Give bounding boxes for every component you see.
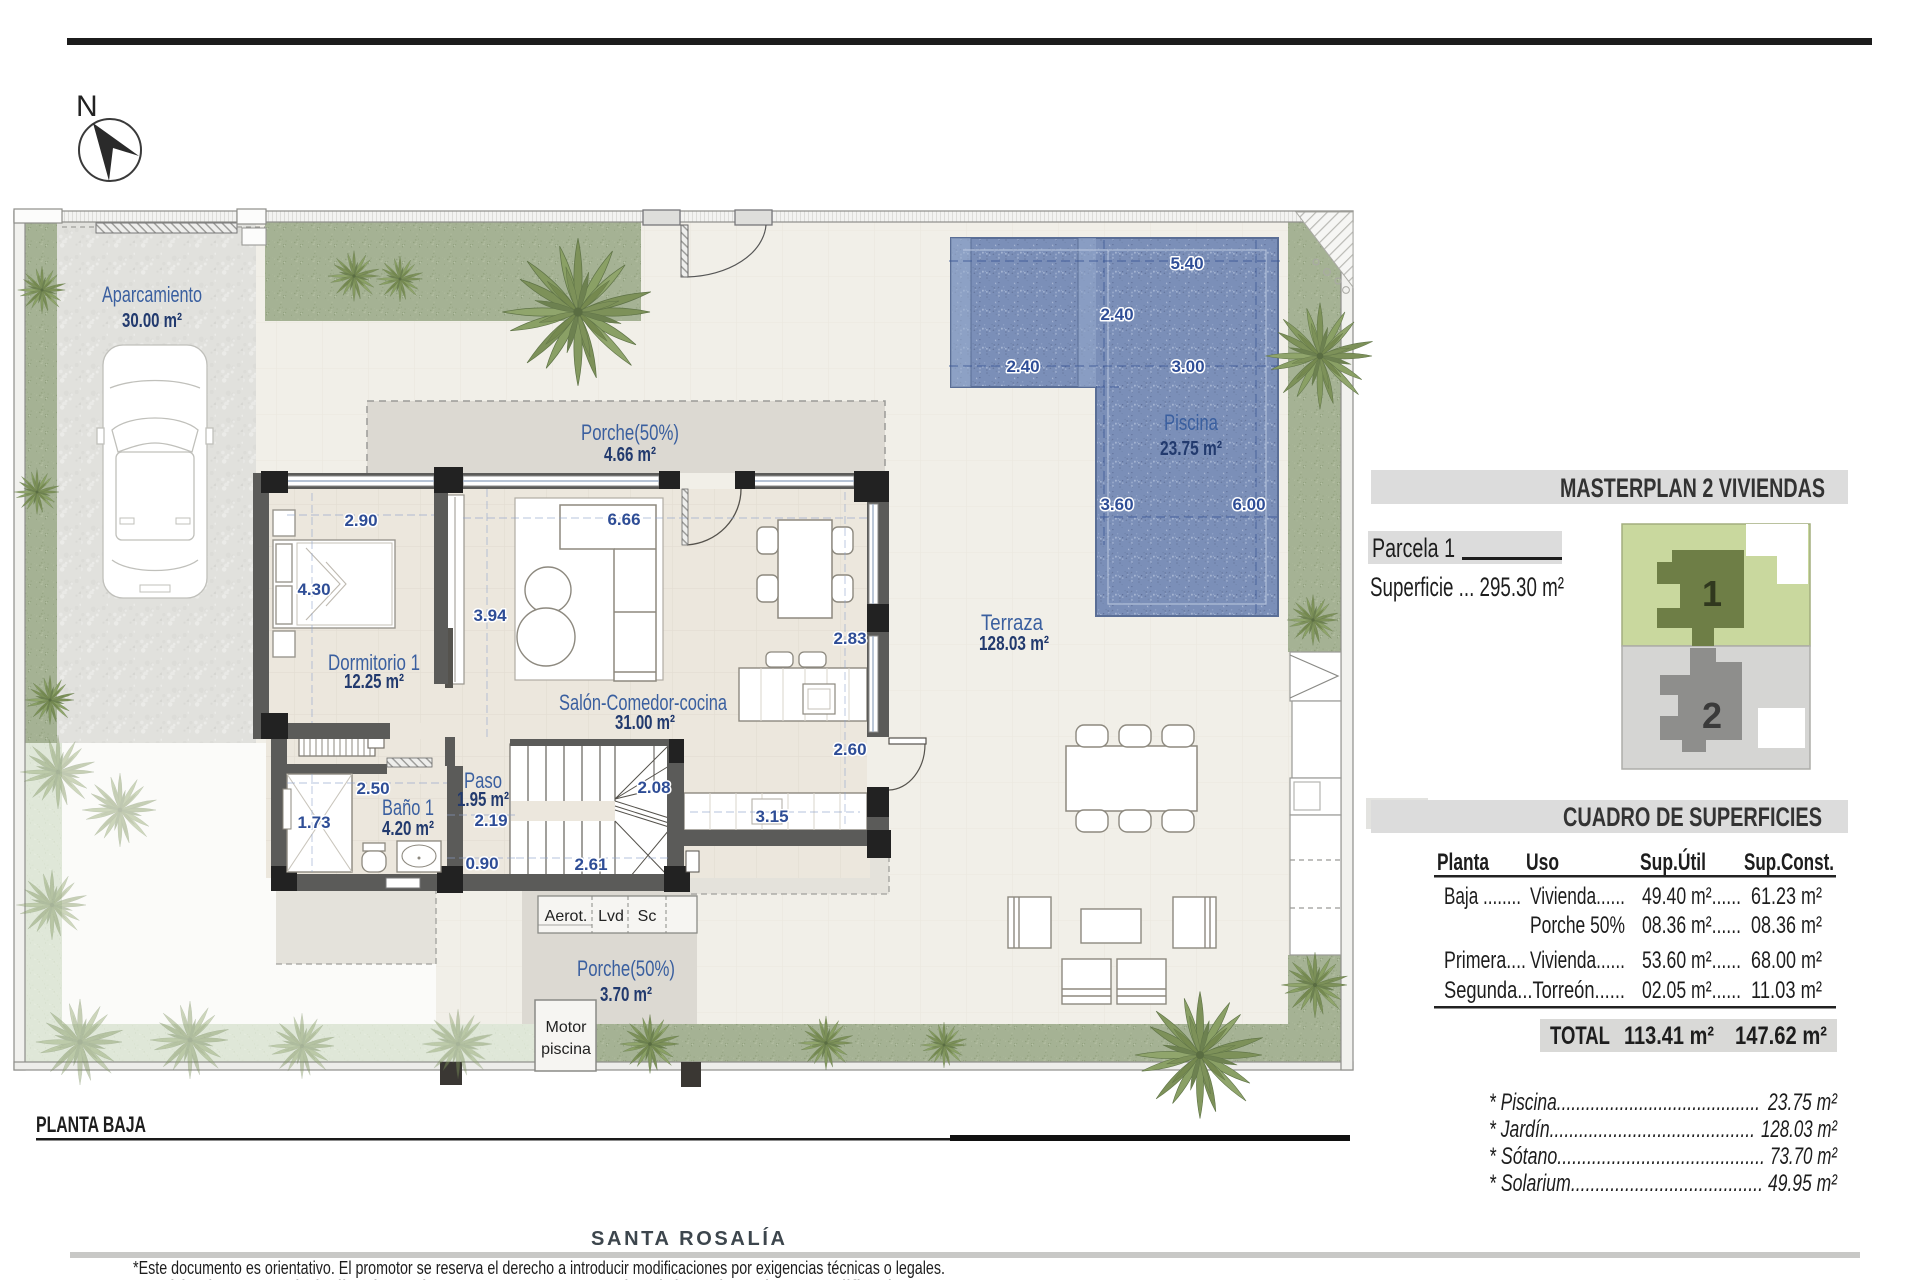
svg-text:Porche 50%: Porche 50%	[1530, 912, 1625, 939]
svg-text:Parcela 1: Parcela 1	[1372, 533, 1455, 563]
svg-text:73.70 m²: 73.70 m²	[1770, 1143, 1838, 1170]
svg-text:MASTERPLAN 2 VIVIENDAS: MASTERPLAN 2 VIVIENDAS	[1560, 473, 1825, 503]
svg-text:* Jardín......................: * Jardín................................…	[1489, 1116, 1755, 1143]
svg-text:Porche(50%): Porche(50%)	[581, 420, 679, 445]
svg-text:Terraza: Terraza	[981, 610, 1044, 635]
svg-text:* Solarium....................: * Solarium..............................…	[1489, 1170, 1763, 1197]
svg-text:Sup.Útil: Sup.Útil	[1640, 848, 1706, 876]
svg-text:02.05 m²......: 02.05 m²......	[1642, 977, 1741, 1004]
svg-text:12.25 m²: 12.25 m²	[344, 671, 404, 693]
svg-text:N: N	[76, 90, 98, 123]
svg-text:* Sótano......................: * Sótano................................…	[1489, 1143, 1765, 1170]
svg-text:08.36 m²......: 08.36 m²......	[1642, 912, 1741, 939]
svg-text:TOTAL: TOTAL	[1550, 1022, 1610, 1050]
svg-text:128.03 m²: 128.03 m²	[979, 633, 1049, 655]
svg-text:2.19: 2.19	[474, 811, 507, 830]
svg-text:2.61: 2.61	[574, 855, 607, 874]
svg-text:Segunda...Torreón......: Segunda...Torreón......	[1444, 977, 1625, 1004]
svg-text:6.66: 6.66	[607, 510, 640, 529]
svg-text:Superficie ... 295.30 m²: Superficie ... 295.30 m²	[1370, 572, 1564, 602]
svg-text:Lvd: Lvd	[598, 908, 624, 925]
svg-text:Sc: Sc	[638, 908, 657, 925]
svg-text:piscina: piscina	[541, 1041, 591, 1058]
svg-text:Aparcamiento: Aparcamiento	[102, 282, 202, 307]
svg-text:Porche(50%): Porche(50%)	[577, 956, 675, 981]
svg-text:49.95 m²: 49.95 m²	[1768, 1170, 1838, 1197]
svg-text:113.41 m²: 113.41 m²	[1624, 1022, 1714, 1050]
svg-text:Motor: Motor	[546, 1019, 588, 1036]
svg-text:2.40: 2.40	[1006, 357, 1039, 376]
svg-text:31.00 m²: 31.00 m²	[615, 712, 675, 734]
svg-text:Baño 1: Baño 1	[382, 795, 434, 820]
svg-text:Planta: Planta	[1437, 849, 1489, 876]
svg-text:2.40: 2.40	[1100, 305, 1133, 324]
svg-text:1.95 m²: 1.95 m²	[457, 789, 509, 811]
svg-text:3.60: 3.60	[1100, 495, 1133, 514]
svg-text:23.75 m²: 23.75 m²	[1767, 1089, 1837, 1116]
svg-text:Aerot.: Aerot.	[545, 908, 588, 925]
svg-text:*Este documento es orientativo: *Este documento es orientativo. El promo…	[133, 1258, 945, 1278]
svg-text:Vivienda......: Vivienda......	[1530, 947, 1625, 974]
svg-text:3.00: 3.00	[1171, 357, 1204, 376]
svg-text:23.75 m²: 23.75 m²	[1160, 438, 1222, 460]
svg-text:Vivienda......: Vivienda......	[1530, 883, 1625, 910]
svg-text:68.00 m²: 68.00 m²	[1751, 947, 1822, 974]
svg-text:2.83: 2.83	[833, 629, 866, 648]
svg-text:11.03 m²: 11.03 m²	[1751, 977, 1822, 1004]
svg-text:2.60: 2.60	[833, 740, 866, 759]
svg-text:CUADRO DE SUPERFICIES: CUADRO DE SUPERFICIES	[1563, 802, 1822, 832]
svg-text:5.40: 5.40	[1170, 254, 1203, 273]
svg-text:* Piscina.....................: * Piscina...............................…	[1489, 1089, 1760, 1116]
svg-text:4.30: 4.30	[297, 580, 330, 599]
svg-text:1.73: 1.73	[297, 813, 330, 832]
svg-text:4.20 m²: 4.20 m²	[382, 818, 434, 840]
svg-text:128.03 m²: 128.03 m²	[1761, 1116, 1838, 1143]
svg-text:49.40 m²......: 49.40 m²......	[1642, 883, 1741, 910]
svg-text:2: 2	[1702, 695, 1722, 736]
svg-text:147.62 m²: 147.62 m²	[1735, 1022, 1827, 1050]
svg-text:PLANTA BAJA: PLANTA BAJA	[36, 1112, 146, 1137]
svg-text:53.60 m²......: 53.60 m²......	[1642, 947, 1741, 974]
svg-text:6.00: 6.00	[1232, 495, 1265, 514]
svg-text:2.08: 2.08	[637, 778, 670, 797]
svg-text:2.90: 2.90	[344, 511, 377, 530]
svg-text:Primera....: Primera....	[1444, 947, 1526, 974]
svg-text:4.66 m²: 4.66 m²	[604, 444, 656, 466]
svg-text:SANTA ROSALÍA: SANTA ROSALÍA	[591, 1227, 791, 1250]
svg-text:3.15: 3.15	[755, 807, 788, 826]
svg-text:1: 1	[1702, 573, 1722, 614]
svg-text:Sup.Const.: Sup.Const.	[1744, 849, 1834, 876]
svg-text:08.36 m²: 08.36 m²	[1751, 912, 1822, 939]
svg-text:30.00 m²: 30.00 m²	[122, 310, 182, 332]
svg-text:0.90: 0.90	[465, 854, 498, 873]
svg-text:Piscina: Piscina	[1164, 410, 1219, 435]
svg-text:Baja ........: Baja ........	[1444, 883, 1521, 910]
svg-text:61.23 m²: 61.23 m²	[1751, 883, 1822, 910]
svg-text:3.94: 3.94	[473, 606, 507, 625]
svg-text:Uso: Uso	[1526, 849, 1559, 876]
svg-text:3.70 m²: 3.70 m²	[600, 984, 652, 1006]
